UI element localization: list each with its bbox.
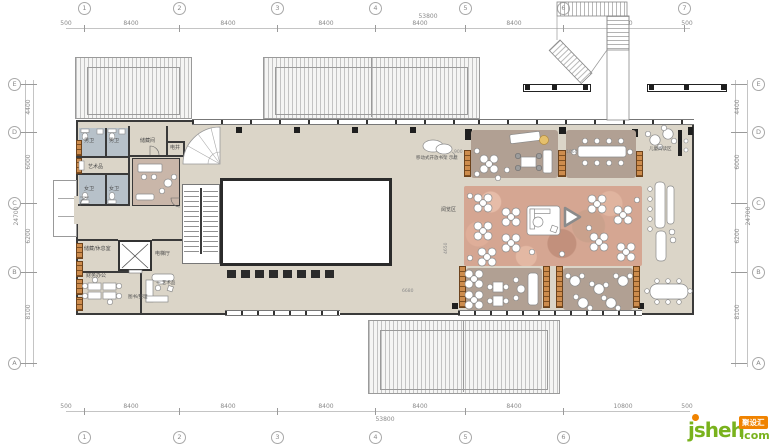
book-sorting-desk [146, 274, 174, 302]
finance-office-desks [82, 277, 121, 304]
bar-counter [648, 182, 676, 261]
label-female-wc-1: 女卫 [84, 187, 94, 193]
elevator-car [122, 244, 148, 273]
meeting-room-furniture [136, 164, 177, 200]
label-cloud-note: 移动式开放书架 示意 [416, 157, 458, 162]
watermark-badge: 聚设汇 [739, 416, 768, 429]
label-female-wc-2: 女卫 [109, 187, 119, 193]
label-art-note: 一 艺术品 [156, 282, 175, 287]
zone-d-furniture [565, 273, 632, 310]
label-electric-shaft: 电井 [170, 146, 180, 152]
label-reading-area: 阅览区 [441, 208, 456, 214]
door-arcs [80, 146, 180, 207]
label-male-wc-1: 男卫 [84, 139, 94, 145]
label-male-wc-2: 男卫 [109, 139, 119, 145]
label-storage-room: 储藏间 [140, 139, 155, 145]
label-storage-rest: 储藏/休息室 [84, 247, 111, 253]
watermark-tld: .com [740, 430, 770, 441]
kids-table-bottom [645, 279, 693, 305]
fan-stair [183, 127, 220, 164]
label-elevator-hall: 电梯厅 [155, 252, 170, 258]
plan-dim-4650: 4650 [445, 238, 450, 258]
central-zone-furniture [467, 193, 639, 266]
plan-dim-1060: 1060 [566, 151, 577, 156]
label-kids-reading-area: 儿童阅读区 [649, 148, 672, 153]
label-art-corridor: 艺术品 [88, 165, 103, 171]
zone-a-furniture [474, 131, 552, 180]
watermark: jsheh 聚设汇 .com [686, 412, 770, 448]
zone-b-furniture [571, 138, 632, 165]
label-finance-office: 财务办公 [86, 274, 106, 280]
external-stair [549, 2, 629, 120]
watermark-word: jsheh [688, 420, 744, 440]
plan-dim-6680: 6680 [402, 290, 413, 295]
furniture-layer [0, 0, 770, 448]
label-book-sorting: 图书/整理 [128, 296, 148, 301]
floor-plan-canvas: 1 2 3 4 5 6 7 53800 500 8400 8400 8400 8… [0, 0, 770, 448]
zone-c-furniture [465, 270, 538, 309]
plan-dim-900: 900 [454, 151, 463, 156]
